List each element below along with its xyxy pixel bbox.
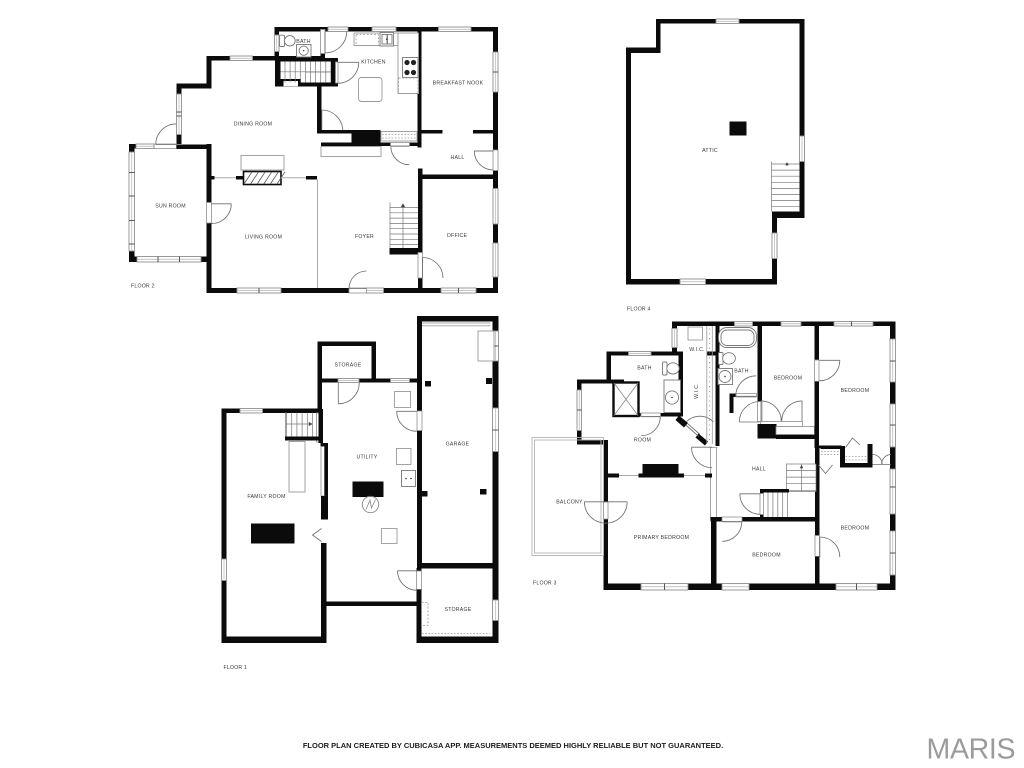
svg-text:KITCHEN: KITCHEN (361, 60, 386, 66)
svg-text:FAMILY ROOM: FAMILY ROOM (247, 494, 285, 500)
svg-text:FLOOR 2: FLOOR 2 (131, 284, 155, 290)
svg-text:MARIS: MARIS (927, 734, 1016, 766)
svg-text:GARAGE: GARAGE (446, 442, 470, 448)
svg-text:PRIMARY BEDROOM: PRIMARY BEDROOM (634, 535, 689, 541)
svg-text:LIVING ROOM: LIVING ROOM (245, 235, 282, 241)
svg-text:FLOOR 3: FLOOR 3 (533, 581, 557, 587)
svg-text:FLOOR PLAN CREATED BY CUBICASA: FLOOR PLAN CREATED BY CUBICASA APP. MEAS… (303, 741, 723, 750)
svg-text:OFFICE: OFFICE (447, 233, 468, 239)
svg-text:STORAGE: STORAGE (444, 607, 471, 613)
svg-text:HALL: HALL (752, 467, 766, 473)
svg-text:W.I.C.: W.I.C. (694, 383, 700, 399)
svg-text:BATH: BATH (296, 39, 310, 45)
svg-text:STORAGE: STORAGE (334, 363, 361, 369)
svg-text:BREAKFAST NOOK: BREAKFAST NOOK (433, 81, 484, 87)
svg-text:DINING ROOM: DINING ROOM (234, 122, 273, 128)
svg-text:ATTIC: ATTIC (702, 148, 718, 154)
svg-text:ROOM: ROOM (634, 438, 651, 444)
svg-text:SUN ROOM: SUN ROOM (155, 204, 186, 210)
svg-text:FLOOR 1: FLOOR 1 (224, 665, 248, 671)
svg-text:HALL: HALL (451, 155, 465, 161)
svg-text:BEDROOM: BEDROOM (841, 388, 870, 394)
svg-text:BEDROOM: BEDROOM (774, 376, 803, 382)
svg-text:BATH: BATH (637, 366, 651, 372)
svg-text:BEDROOM: BEDROOM (752, 553, 781, 559)
svg-text:FLOOR 4: FLOOR 4 (627, 307, 651, 313)
svg-text:W.I.C.: W.I.C. (689, 347, 705, 353)
svg-text:UTILITY: UTILITY (356, 455, 377, 461)
svg-text:FOYER: FOYER (355, 234, 374, 240)
svg-text:BATH: BATH (734, 369, 748, 375)
svg-text:BALCONY: BALCONY (556, 500, 583, 506)
svg-text:BEDROOM: BEDROOM (841, 526, 870, 532)
